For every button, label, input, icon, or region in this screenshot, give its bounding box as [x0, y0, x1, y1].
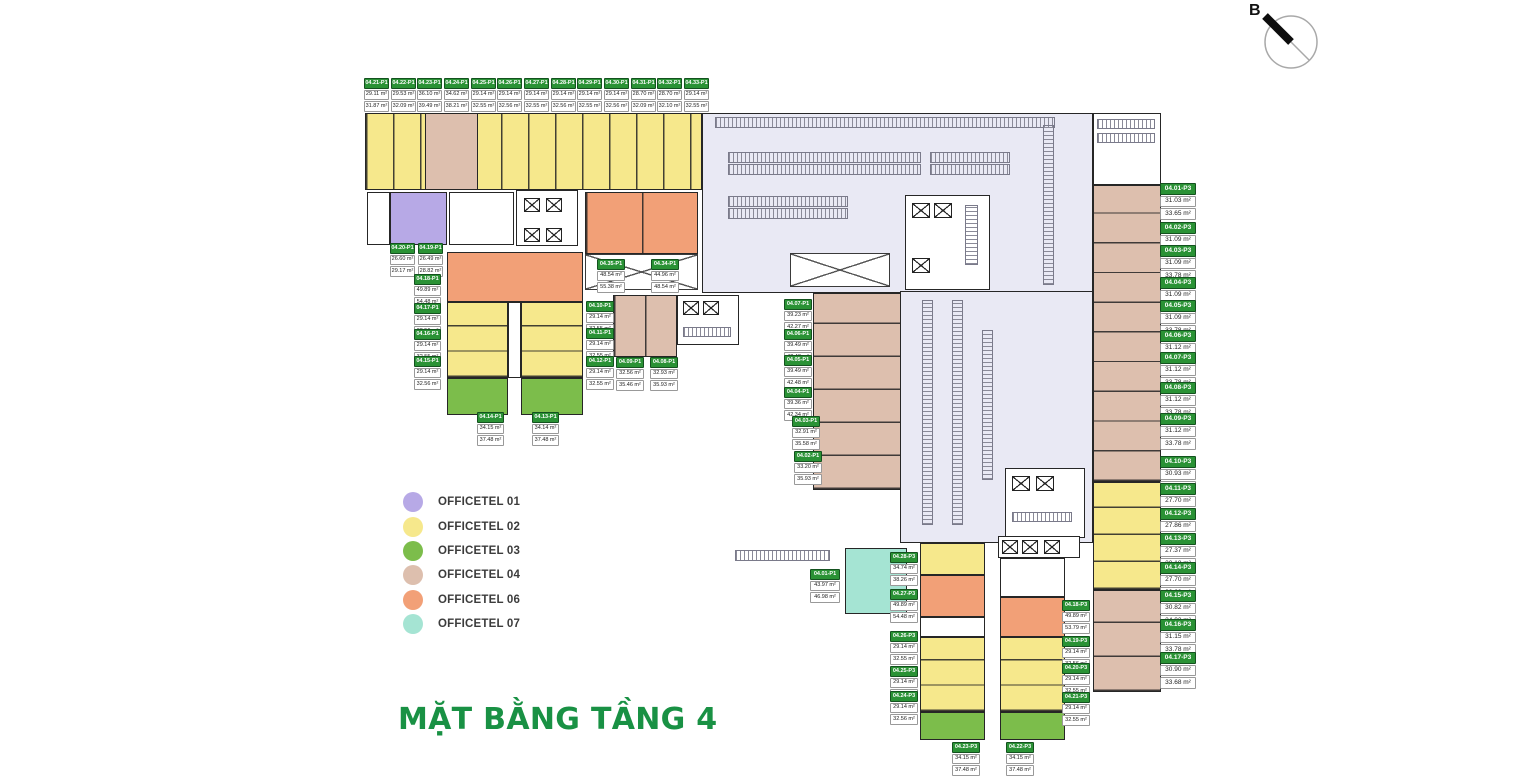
unit-id: 04.14-P1 [477, 412, 504, 423]
officetel06-dot-icon [403, 590, 423, 610]
unit-area-1: 43.97 m² [810, 581, 840, 592]
unit-id: 04.26-P3 [890, 631, 918, 642]
unit-area-1: 29.14 m² [684, 90, 709, 101]
unit-area-1: 39.36 m² [784, 399, 812, 410]
unit-area-2: 32.10 m² [657, 101, 682, 112]
unit-label-04.20-P1: 04.20-P126.60 m²29.17 m² [390, 243, 415, 277]
unit-area-1: 44.96 m² [651, 271, 679, 282]
unit-area-1: 29.14 m² [1062, 675, 1090, 686]
unit-id: 04.04-P3 [1160, 277, 1196, 289]
unit-id: 04.14-P3 [1160, 562, 1196, 574]
officetel02-dot-icon [403, 517, 423, 537]
unit-label-04.24-P3: 04.24-P329.14 m²32.56 m² [890, 691, 918, 725]
unit-area-2: 54.48 m² [890, 612, 918, 623]
unit-label-04.31-P1: 04.31-P128.70 m²32.09 m² [631, 78, 656, 112]
compass-north-label: B [1249, 2, 1261, 20]
unit-label-04.03-P1: 04.03-P132.91 m²35.58 m² [792, 416, 820, 450]
unit-label-04.08-P1: 04.08-P132.93 m²35.93 m² [650, 357, 678, 391]
unit-id: 04.01-P3 [1160, 183, 1196, 195]
unit-area-1: 29.53 m² [391, 90, 416, 101]
unit-area-1: 34.15 m² [952, 754, 980, 765]
unit-area-2: 32.56 m² [604, 101, 629, 112]
unit-label-04.09-P3: 04.09-P331.12 m²33.78 m² [1160, 413, 1196, 450]
unit-area-1: 26.49 m² [418, 255, 443, 266]
unit-id: 04.19-P3 [1062, 636, 1090, 647]
unit-id: 04.19-P1 [418, 243, 443, 254]
legend-item-officetel02: OFFICETEL 02 [403, 514, 520, 538]
unit-area-2: 32.56 m² [890, 714, 918, 725]
unit-area-2: 33.65 m² [1160, 208, 1196, 220]
unit-label-04.01-P1: 04.01-P143.97 m²46.98 m² [810, 569, 840, 603]
unit-area-2: 31.87 m² [364, 101, 389, 112]
unit-id: 04.35-P1 [597, 259, 625, 270]
unit-id: 04.23-P3 [952, 742, 980, 753]
officetel03-dot-icon [403, 541, 423, 561]
unit-label-04.23-P1: 04.23-P136.10 m²39.49 m² [417, 78, 442, 112]
unit-area-1: 29.14 m² [1062, 648, 1090, 659]
unit-area-1: 36.10 m² [417, 90, 442, 101]
unit-id: 04.33-P1 [684, 78, 709, 89]
unit-area-2: 32.56 m² [551, 101, 576, 112]
unit-label-04.30-P1: 04.30-P129.14 m²32.56 m² [604, 78, 629, 112]
unit-id: 04.16-P3 [1160, 619, 1196, 631]
unit-label-04.22-P3: 04.22-P334.15 m²37.48 m² [1006, 742, 1034, 776]
unit-area-1: 28.70 m² [631, 90, 656, 101]
unit-area-1: 34.14 m² [532, 424, 559, 435]
unit-label-04.05-P1: 04.05-P139.49 m²42.48 m² [784, 355, 812, 389]
unit-id: 04.08-P1 [650, 357, 678, 368]
legend: OFFICETEL 01OFFICETEL 02OFFICETEL 03OFFI… [403, 490, 520, 636]
unit-area-1: 29.14 m² [586, 313, 614, 324]
unit-area-1: 29.14 m² [604, 90, 629, 101]
unit-area-1: 31.12 m² [1160, 426, 1196, 438]
unit-label-04.23-P3: 04.23-P334.15 m²37.48 m² [952, 742, 980, 776]
unit-label-04.29-P1: 04.29-P129.14 m²32.55 m² [577, 78, 602, 112]
unit-area-1: 29.14 m² [551, 90, 576, 101]
unit-area-1: 27.86 m² [1160, 521, 1196, 533]
unit-id: 04.18-P1 [414, 274, 441, 285]
unit-area-2: 35.46 m² [616, 380, 644, 391]
unit-area-1: 32.56 m² [616, 369, 644, 380]
unit-id: 04.13-P3 [1160, 533, 1196, 545]
legend-label: OFFICETEL 06 [438, 594, 520, 606]
unit-area-2: 32.55 m² [524, 101, 549, 112]
unit-label-04.16-P3: 04.16-P331.15 m²33.78 m² [1160, 619, 1196, 656]
unit-label-04.14-P1: 04.14-P134.15 m²37.48 m² [477, 412, 504, 446]
unit-id: 04.09-P1 [616, 357, 644, 368]
unit-id: 04.20-P3 [1062, 663, 1090, 674]
legend-label: OFFICETEL 07 [438, 618, 520, 630]
unit-area-2: 37.48 m² [477, 435, 504, 446]
unit-area-2: 37.48 m² [952, 765, 980, 776]
unit-label-04.18-P3: 04.18-P349.89 m²53.79 m² [1062, 600, 1090, 634]
unit-area-1: 34.15 m² [477, 424, 504, 435]
unit-area-1: 29.14 m² [586, 340, 614, 351]
unit-area-1: 31.09 m² [1160, 258, 1196, 270]
unit-area-2: 48.54 m² [651, 282, 679, 293]
legend-label: OFFICETEL 02 [438, 521, 520, 533]
unit-id: 04.17-P1 [414, 303, 441, 314]
unit-area-1: 29.14 m² [890, 703, 918, 714]
unit-id: 04.32-P1 [657, 78, 682, 89]
unit-area-2: 32.56 m² [414, 379, 441, 390]
unit-id: 04.08-P3 [1160, 382, 1196, 394]
unit-area-2: 37.48 m² [1006, 765, 1034, 776]
unit-label-04.26-P3: 04.26-P329.14 m²32.55 m² [890, 631, 918, 665]
unit-id: 04.15-P1 [414, 356, 441, 367]
unit-id: 04.04-P1 [784, 387, 812, 398]
officetel07-dot-icon [403, 614, 423, 634]
unit-id: 04.03-P3 [1160, 245, 1196, 257]
unit-area-1: 27.70 m² [1160, 575, 1196, 587]
unit-area-2: 38.26 m² [890, 575, 918, 586]
unit-area-1: 33.20 m² [794, 463, 822, 474]
unit-id: 04.28-P3 [890, 552, 918, 563]
officetel01-dot-icon [403, 492, 423, 512]
unit-area-2: 32.55 m² [586, 379, 614, 390]
legend-label: OFFICETEL 03 [438, 545, 520, 557]
unit-label-04.12-P1: 04.12-P129.14 m²32.55 m² [586, 356, 614, 390]
unit-label-04.28-P1: 04.28-P129.14 m²32.56 m² [551, 78, 576, 112]
unit-id: 04.26-P1 [497, 78, 522, 89]
unit-label-04.15-P1: 04.15-P129.14 m²32.56 m² [414, 356, 441, 390]
unit-id: 04.23-P1 [417, 78, 442, 89]
legend-label: OFFICETEL 04 [438, 569, 520, 581]
unit-id: 04.27-P1 [524, 78, 549, 89]
unit-label-04.09-P1: 04.09-P132.56 m²35.46 m² [616, 357, 644, 391]
legend-item-officetel03: OFFICETEL 03 [403, 539, 520, 563]
unit-area-1: 31.03 m² [1160, 196, 1196, 208]
unit-label-04.22-P1: 04.22-P129.53 m²32.09 m² [391, 78, 416, 112]
unit-id: 04.22-P3 [1006, 742, 1034, 753]
unit-area-1: 32.93 m² [650, 369, 678, 380]
unit-area-1: 29.14 m² [524, 90, 549, 101]
unit-id: 04.28-P1 [551, 78, 576, 89]
legend-item-officetel06: OFFICETEL 06 [403, 588, 520, 612]
unit-area-2: 35.58 m² [792, 439, 820, 450]
unit-id: 04.34-P1 [651, 259, 679, 270]
unit-area-1: 29.14 m² [497, 90, 522, 101]
unit-area-2: 35.93 m² [794, 474, 822, 485]
legend-item-officetel04: OFFICETEL 04 [403, 563, 520, 587]
unit-area-2: 32.09 m² [391, 101, 416, 112]
unit-area-1: 31.12 m² [1160, 395, 1196, 407]
unit-id: 04.01-P1 [810, 569, 840, 580]
unit-area-2: 32.55 m² [577, 101, 602, 112]
unit-area-1: 49.89 m² [890, 601, 918, 612]
unit-id: 04.05-P3 [1160, 300, 1196, 312]
unit-id: 04.30-P1 [604, 78, 629, 89]
unit-area-1: 29.14 m² [414, 341, 441, 352]
unit-area-1: 29.14 m² [890, 678, 918, 689]
unit-id: 04.11-P1 [586, 328, 614, 339]
unit-area-1: 29.14 m² [414, 315, 441, 326]
unit-id: 04.02-P1 [794, 451, 822, 462]
unit-id: 04.21-P1 [364, 78, 389, 89]
unit-id: 04.24-P1 [444, 78, 469, 89]
unit-area-1: 30.82 m² [1160, 603, 1196, 615]
unit-id: 04.02-P3 [1160, 222, 1196, 234]
unit-area-2: 38.21 m² [444, 101, 469, 112]
unit-id: 04.09-P3 [1160, 413, 1196, 425]
officetel04-dot-icon [403, 565, 423, 585]
legend-label: OFFICETEL 01 [438, 496, 520, 508]
unit-label-04.19-P1: 04.19-P126.49 m²28.82 m² [418, 243, 443, 277]
unit-area-2: 55.38 m² [597, 282, 625, 293]
unit-area-1: 48.54 m² [597, 271, 625, 282]
unit-area-1: 26.60 m² [390, 255, 415, 266]
unit-label-04.34-P1: 04.34-P144.96 m²48.54 m² [651, 259, 679, 293]
unit-id: 04.27-P3 [890, 589, 918, 600]
unit-id: 04.10-P3 [1160, 456, 1196, 468]
unit-id: 04.05-P1 [784, 355, 812, 366]
unit-area-2: 33.68 m² [1160, 677, 1196, 689]
unit-area-1: 34.62 m² [444, 90, 469, 101]
unit-area-2: 32.55 m² [1062, 715, 1090, 726]
unit-id: 04.03-P1 [792, 416, 820, 427]
unit-area-2: 46.98 m² [810, 592, 840, 603]
unit-area-1: 27.37 m² [1160, 546, 1196, 558]
unit-area-1: 29.11 m² [364, 90, 389, 101]
unit-id: 04.12-P3 [1160, 508, 1196, 520]
unit-label-04.26-P1: 04.26-P129.14 m²32.56 m² [497, 78, 522, 112]
unit-area-1: 29.14 m² [586, 368, 614, 379]
unit-area-1: 39.49 m² [784, 367, 812, 378]
unit-area-1: 34.74 m² [890, 564, 918, 575]
unit-area-1: 31.09 m² [1160, 313, 1196, 325]
unit-label-04.27-P3: 04.27-P349.89 m²54.48 m² [890, 589, 918, 623]
unit-area-2: 53.79 m² [1062, 623, 1090, 634]
unit-id: 04.15-P3 [1160, 590, 1196, 602]
unit-area-1: 29.14 m² [1062, 704, 1090, 715]
page-title: MẶT BẰNG TẦNG 4 [398, 702, 717, 737]
unit-id: 04.13-P1 [532, 412, 559, 423]
unit-area-2: 32.09 m² [631, 101, 656, 112]
unit-label-04.25-P1: 04.25-P129.14 m²32.55 m² [471, 78, 496, 112]
unit-area-1: 32.91 m² [792, 428, 820, 439]
legend-item-officetel01: OFFICETEL 01 [403, 490, 520, 514]
floor-plan: 04.21-P129.11 m²31.87 m²04.22-P129.53 m²… [0, 0, 1536, 776]
unit-area-2: 32.56 m² [497, 101, 522, 112]
unit-area-1: 29.14 m² [414, 368, 441, 379]
unit-id: 04.06-P3 [1160, 330, 1196, 342]
unit-id: 04.22-P1 [391, 78, 416, 89]
unit-area-2: 37.48 m² [532, 435, 559, 446]
unit-label-04.32-P1: 04.32-P128.70 m²32.10 m² [657, 78, 682, 112]
unit-area-1: 29.14 m² [471, 90, 496, 101]
unit-area-1: 49.89 m² [1062, 612, 1090, 623]
unit-area-2: 32.55 m² [890, 654, 918, 665]
unit-area-1: 31.15 m² [1160, 632, 1196, 644]
unit-area-2: 33.78 m² [1160, 438, 1196, 450]
unit-id: 04.25-P1 [471, 78, 496, 89]
unit-label-04.21-P3: 04.21-P329.14 m²32.55 m² [1062, 692, 1090, 726]
unit-id: 04.18-P3 [1062, 600, 1090, 611]
unit-area-2: 29.17 m² [390, 266, 415, 277]
unit-id: 04.17-P3 [1160, 652, 1196, 664]
unit-id: 04.31-P1 [631, 78, 656, 89]
unit-labels-layer: 04.21-P129.11 m²31.87 m²04.22-P129.53 m²… [0, 0, 1536, 776]
unit-area-1: 30.90 m² [1160, 665, 1196, 677]
unit-label-04.13-P1: 04.13-P134.14 m²37.48 m² [532, 412, 559, 446]
unit-label-04.35-P1: 04.35-P148.54 m²55.38 m² [597, 259, 625, 293]
unit-id: 04.24-P3 [890, 691, 918, 702]
unit-label-04.07-P1: 04.07-P139.23 m²42.27 m² [784, 299, 812, 333]
unit-id: 04.25-P3 [890, 666, 918, 677]
unit-area-2: 32.55 m² [684, 101, 709, 112]
unit-id: 04.12-P1 [586, 356, 614, 367]
unit-area-1: 39.23 m² [784, 311, 812, 322]
unit-area-2: 32.55 m² [471, 101, 496, 112]
compass-icon [1255, 8, 1323, 72]
unit-label-04.21-P1: 04.21-P129.11 m²31.87 m² [364, 78, 389, 112]
unit-label-04.02-P1: 04.02-P133.20 m²35.93 m² [794, 451, 822, 485]
unit-area-1: 29.14 m² [577, 90, 602, 101]
unit-area-2: 39.49 m² [417, 101, 442, 112]
unit-id: 04.21-P3 [1062, 692, 1090, 703]
unit-id: 04.16-P1 [414, 329, 441, 340]
unit-id: 04.20-P1 [390, 243, 415, 254]
unit-id: 04.06-P1 [784, 329, 812, 340]
unit-id: 04.07-P1 [784, 299, 812, 310]
unit-area-1: 39.49 m² [784, 341, 812, 352]
unit-label-04.01-P3: 04.01-P331.03 m²33.65 m² [1160, 183, 1196, 220]
legend-item-officetel07: OFFICETEL 07 [403, 612, 520, 636]
unit-area-1: 29.14 m² [890, 643, 918, 654]
unit-area-1: 49.89 m² [414, 286, 441, 297]
unit-id: 04.10-P1 [586, 301, 614, 312]
unit-area-1: 34.15 m² [1006, 754, 1034, 765]
unit-area-1: 30.93 m² [1160, 469, 1196, 481]
unit-label-04.33-P1: 04.33-P129.14 m²32.55 m² [684, 78, 709, 112]
unit-area-1: 31.12 m² [1160, 365, 1196, 377]
unit-id: 04.11-P3 [1160, 483, 1196, 495]
unit-id: 04.29-P1 [577, 78, 602, 89]
unit-area-1: 27.70 m² [1160, 496, 1196, 508]
unit-id: 04.07-P3 [1160, 352, 1196, 364]
unit-label-04.17-P3: 04.17-P330.90 m²33.68 m² [1160, 652, 1196, 689]
unit-label-04.27-P1: 04.27-P129.14 m²32.55 m² [524, 78, 549, 112]
unit-label-04.24-P1: 04.24-P134.62 m²38.21 m² [444, 78, 469, 112]
unit-label-04.28-P3: 04.28-P334.74 m²38.26 m² [890, 552, 918, 586]
unit-area-2: 35.93 m² [650, 380, 678, 391]
unit-area-1: 28.70 m² [657, 90, 682, 101]
